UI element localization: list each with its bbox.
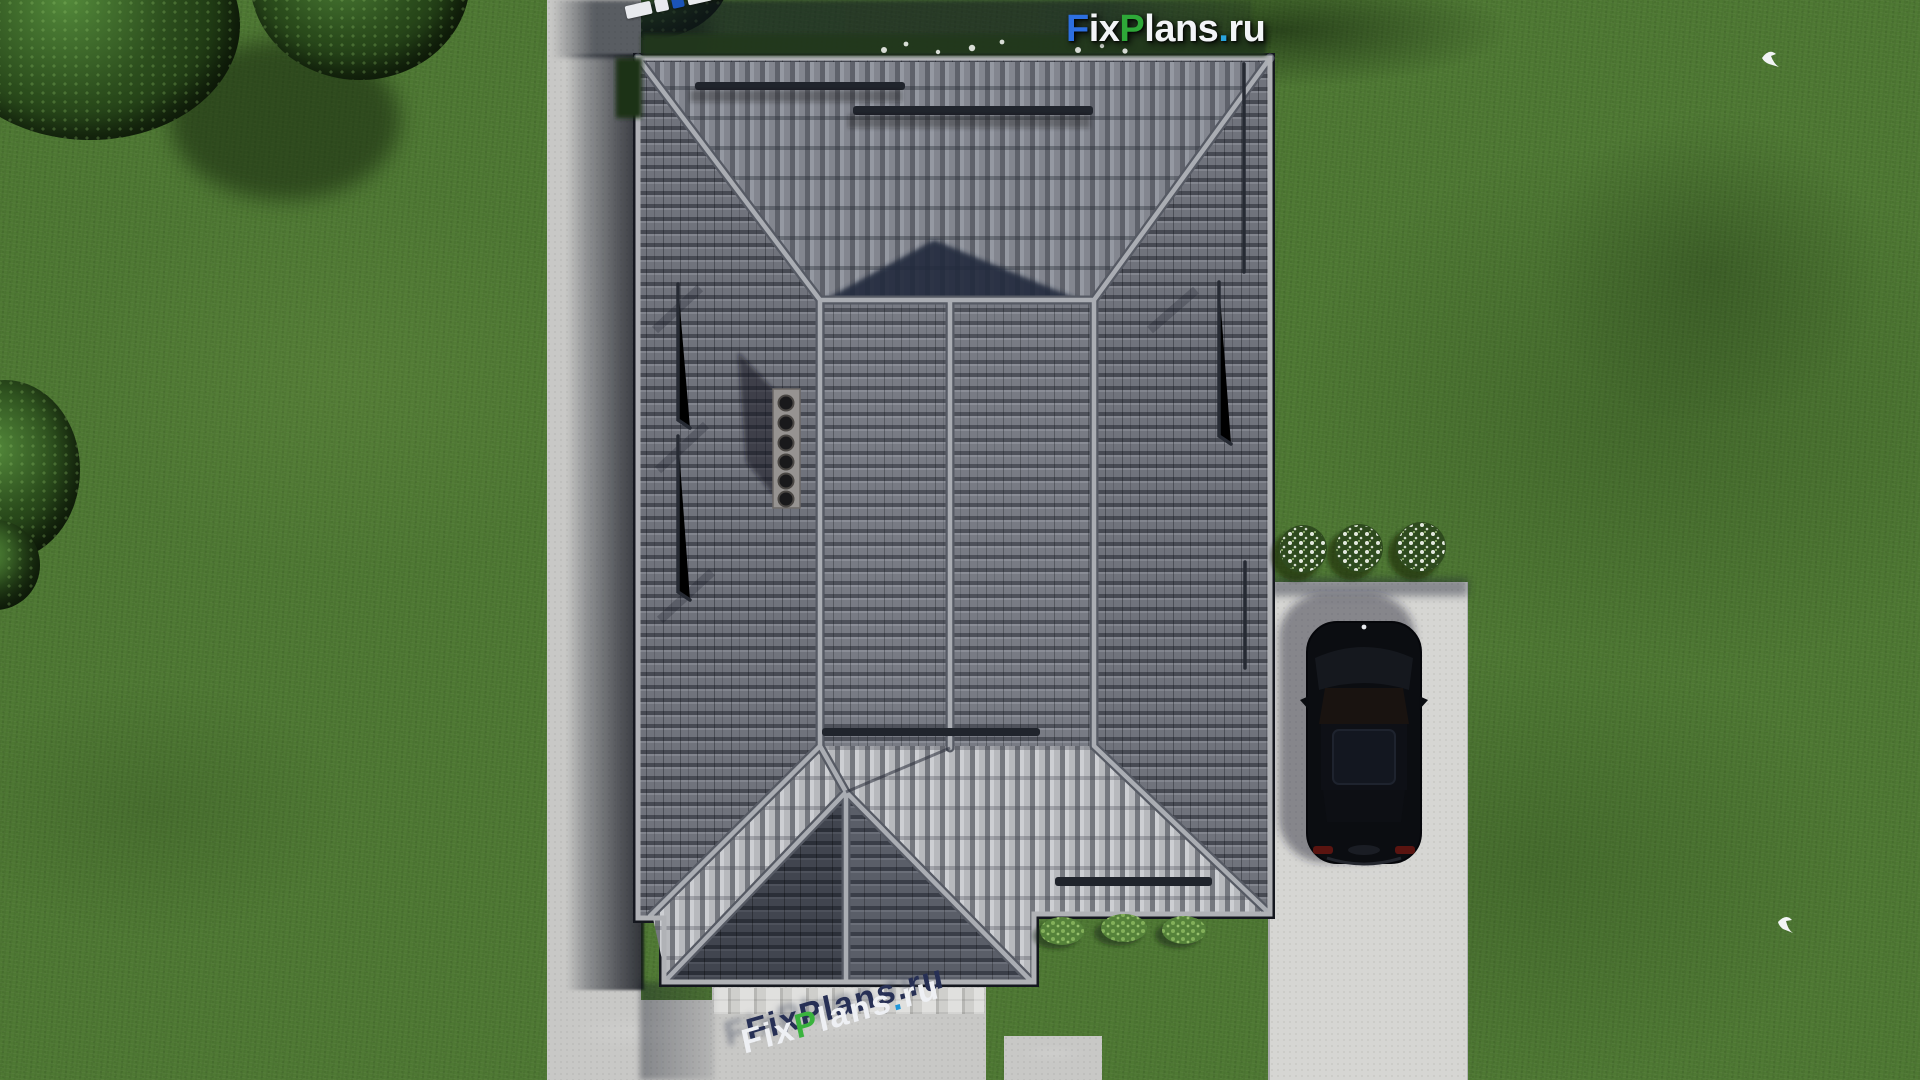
driveway-edge-shadow [1270, 578, 1468, 596]
watermark-3d-bottom: FixPlans.ru FixPlans.ru FixPlans.ru [742, 996, 1042, 1080]
porch-shadow [640, 982, 714, 1080]
aerial-render: FixPlans.ru FixPlans.ru FixPlans.ru FixP… [0, 0, 1920, 1080]
watermark-block [654, 0, 670, 12]
watermark-block [686, 0, 712, 5]
fixplans-logo: FixPlans.ru [1066, 8, 1265, 51]
house-shadow-left [566, 54, 644, 990]
watermark-block [670, 0, 685, 8]
driveway [1268, 582, 1468, 1080]
watermark-block [624, 0, 652, 18]
